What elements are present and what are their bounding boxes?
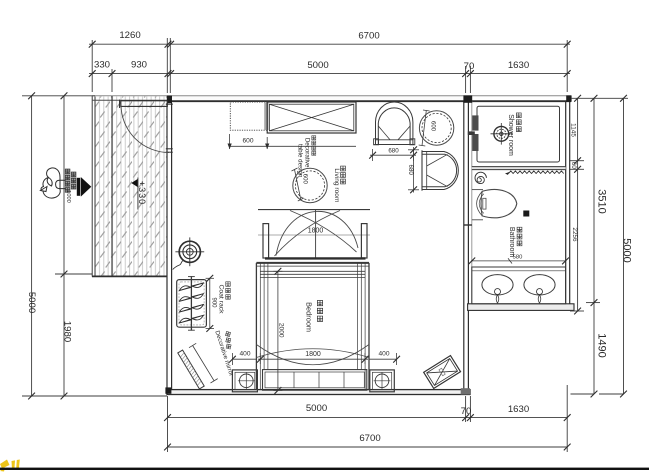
svg-text:1260: 1260 [119,30,140,41]
svg-text:70: 70 [464,61,475,72]
svg-text:5000: 5000 [307,60,328,71]
svg-text:+330: +330 [137,181,147,205]
svg-text:2256: 2256 [571,227,578,242]
svg-text:930: 930 [131,60,147,71]
svg-text:6700: 6700 [358,31,379,42]
svg-text:5000: 5000 [26,292,37,313]
svg-text:1800: 1800 [305,351,321,358]
svg-text:600: 600 [301,174,307,185]
svg-text:1980: 1980 [62,321,73,342]
svg-text:1490: 1490 [596,333,608,357]
svg-text:70: 70 [461,406,472,417]
svg-text:Coat rack: Coat rack [218,284,225,314]
svg-text:580: 580 [513,255,523,261]
svg-text:1630: 1630 [508,404,529,415]
svg-text:1145: 1145 [570,123,577,137]
svg-text:600: 600 [429,121,435,132]
svg-text:1000: 1000 [65,190,71,202]
svg-text:6700: 6700 [359,433,380,444]
svg-text:330: 330 [94,60,110,71]
svg-text:1630: 1630 [508,60,529,71]
svg-text:2000: 2000 [277,323,284,338]
svg-text:680: 680 [407,165,414,176]
svg-text:Living room: Living room [333,168,340,203]
svg-text:680: 680 [388,147,399,154]
svg-text:5000: 5000 [306,403,327,414]
svg-text:900: 900 [211,297,217,308]
svg-text:5000: 5000 [621,238,633,262]
svg-text:3510: 3510 [595,189,607,213]
svg-text:400: 400 [239,351,250,358]
svg-text:Bathroom: Bathroom [508,227,515,258]
svg-text:600: 600 [242,137,253,144]
svg-text:1800: 1800 [308,228,324,235]
svg-text:60: 60 [570,162,577,170]
svg-text:Bedroom: Bedroom [305,302,314,332]
svg-text:Shower room: Shower room [507,114,514,156]
svg-text:400: 400 [378,351,389,358]
